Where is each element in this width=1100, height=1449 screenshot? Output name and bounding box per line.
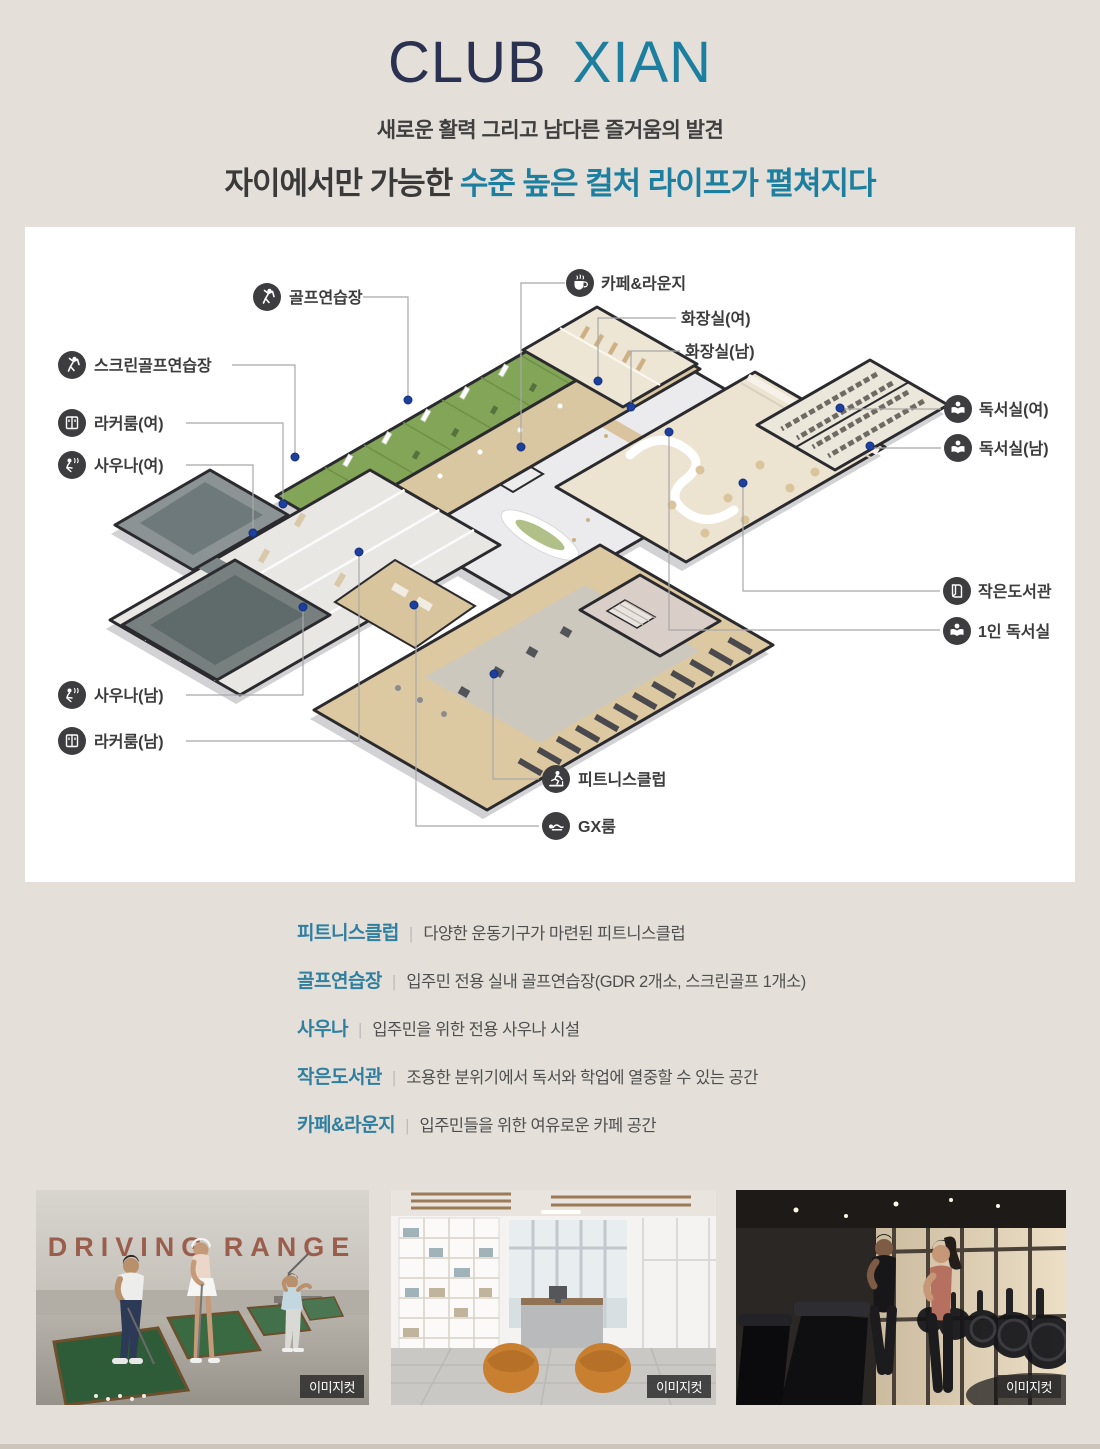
plan-label-small-library: 작은도서관 — [943, 577, 1052, 605]
page-subtitle: 새로운 활력 그리고 남다른 즐거움의 발견 — [0, 114, 1100, 144]
svg-text:사우나(여): 사우나(여) — [94, 457, 164, 475]
facility-separator: | — [392, 972, 396, 991]
title-xian: XIAN — [573, 30, 712, 95]
plan-label-golf-range: 골프연습장 — [253, 283, 363, 311]
marker-sauna-women — [249, 529, 257, 537]
marker-screen-golf — [291, 453, 299, 461]
locker-icon — [58, 409, 86, 437]
plan-label-single-reading: 1인 독서실 — [943, 617, 1050, 645]
floorplan-svg: 골프연습장 스크린골프연습장 라커룸(여) 사우나(여) 사우나(남) 라커룸(… — [25, 227, 1075, 882]
svg-text:골프연습장: 골프연습장 — [289, 289, 363, 307]
locker-icon — [58, 727, 86, 755]
plan-label-screen-golf: 스크린골프연습장 — [58, 351, 212, 379]
facility-row: 사우나|입주민을 위한 전용 사우나 시설 — [297, 1017, 806, 1044]
treadmill-consoles — [736, 1302, 870, 1405]
svg-text:GX룸: GX룸 — [578, 818, 616, 836]
facility-term: 카페&라운지 — [297, 1115, 395, 1136]
headline-accent: 수준 높은 컬처 라이프가 펼쳐지다 — [460, 166, 876, 201]
marker-gx-room — [410, 601, 418, 609]
facility-row: 작은도서관|조용한 분위기에서 독서와 학업에 열중할 수 있는 공간 — [297, 1065, 806, 1092]
svg-text:작은도서관: 작은도서관 — [978, 583, 1052, 601]
facility-desc: 입주민 전용 실내 골프연습장(GDR 2개소, 스크린골프 1개소) — [406, 973, 805, 991]
plan-label-reading-men: 독서실(남) — [944, 434, 1049, 462]
svg-text:라커룸(여): 라커룸(여) — [94, 415, 164, 433]
image-cut-badge: 이미지컷 — [300, 1375, 364, 1398]
plan-label-restroom-men: 화장실(남) — [685, 342, 755, 361]
facility-desc: 입주민을 위한 전용 사우나 시설 — [372, 1021, 579, 1039]
marker-locker-men — [355, 548, 363, 556]
svg-text:화장실(여): 화장실(여) — [681, 309, 751, 328]
marker-reading-men — [866, 442, 874, 450]
facility-row: 카페&라운지|입주민들을 위한 여유로운 카페 공간 — [297, 1113, 806, 1140]
svg-text:사우나(남): 사우나(남) — [94, 687, 164, 705]
svg-text:독서실(남): 독서실(남) — [979, 440, 1049, 458]
reader-icon — [944, 395, 972, 423]
facility-desc: 입주민들을 위한 여유로운 카페 공간 — [420, 1117, 657, 1135]
gx-icon — [542, 812, 570, 840]
marker-fitness — [490, 670, 498, 678]
plan-label-locker-women: 라커룸(여) — [58, 409, 164, 437]
title-club: CLUB — [388, 30, 547, 95]
marker-cafe-lounge — [517, 443, 525, 451]
plan-label-sauna-women: 사우나(여) — [58, 451, 164, 479]
svg-text:라커룸(남): 라커룸(남) — [94, 733, 164, 751]
sauna-icon — [58, 451, 86, 479]
plan-label-locker-men: 라커룸(남) — [58, 727, 164, 755]
page-headline: 자이에서만 가능한 수준 높은 컬처 라이프가 펼쳐지다 — [0, 158, 1100, 203]
svg-text:1인 독서실: 1인 독서실 — [978, 623, 1050, 641]
facility-desc: 조용한 분위기에서 독서와 학업에 열중할 수 있는 공간 — [406, 1069, 758, 1087]
facility-term: 골프연습장 — [297, 971, 382, 992]
facility-separator: | — [405, 1116, 409, 1135]
gym-photo-illustration — [736, 1190, 1066, 1405]
facility-separator: | — [392, 1068, 396, 1087]
photo-gym: 이미지컷 — [736, 1190, 1066, 1405]
facilities-list: 피트니스클럽|다양한 운동기구가 마련된 피트니스클럽 골프연습장|입주민 전용… — [297, 921, 806, 1161]
svg-text:피트니스클럽: 피트니스클럽 — [578, 771, 666, 789]
photo-golf-range: DRIVING RANGE — [36, 1190, 369, 1405]
golfer-icon — [253, 283, 281, 311]
svg-text:스크린골프연습장: 스크린골프연습장 — [94, 357, 212, 375]
plan-label-sauna-men: 사우나(남) — [58, 681, 164, 709]
marker-sauna-men — [299, 603, 307, 611]
svg-text:카페&라운지: 카페&라운지 — [601, 274, 686, 293]
facility-term: 피트니스클럽 — [297, 923, 399, 944]
facility-separator: | — [358, 1020, 362, 1039]
image-cut-badge: 이미지컷 — [997, 1375, 1061, 1398]
facility-term: 작은도서관 — [297, 1067, 382, 1088]
marker-single-reading — [665, 428, 673, 436]
golf-photo-illustration: DRIVING RANGE — [36, 1190, 369, 1405]
coffee-icon — [566, 269, 594, 297]
facility-term: 사우나 — [297, 1019, 348, 1040]
svg-text:독서실(여): 독서실(여) — [979, 401, 1049, 419]
plan-label-cafe-lounge: 카페&라운지 — [566, 269, 686, 297]
marker-reading-women — [836, 404, 844, 412]
facility-row: 골프연습장|입주민 전용 실내 골프연습장(GDR 2개소, 스크린골프 1개소… — [297, 969, 806, 996]
marker-small-library — [739, 479, 747, 487]
floorplan-panel: 골프연습장 스크린골프연습장 라커룸(여) 사우나(여) 사우나(남) 라커룸(… — [25, 227, 1075, 882]
marker-locker-women — [279, 500, 287, 508]
plan-label-gx-room: GX룸 — [542, 812, 616, 840]
marker-golf-range — [404, 396, 412, 404]
facility-row: 피트니스클럽|다양한 운동기구가 마련된 피트니스클럽 — [297, 921, 806, 948]
facility-desc: 다양한 운동기구가 마련된 피트니스클럽 — [423, 925, 685, 943]
page-title: CLUBXIAN — [0, 34, 1100, 92]
marker-restroom-men — [627, 403, 635, 411]
library-photo-illustration — [391, 1190, 716, 1405]
plan-label-restroom-women: 화장실(여) — [681, 309, 751, 328]
reader-icon — [944, 434, 972, 462]
headline-dark: 자이에서만 가능한 — [224, 166, 459, 201]
plan-label-reading-women: 독서실(여) — [944, 395, 1049, 423]
facility-separator: | — [409, 924, 413, 943]
bean-chair — [483, 1343, 539, 1393]
treadmill-icon — [542, 765, 570, 793]
marker-restroom-women — [594, 377, 602, 385]
sauna-icon — [58, 681, 86, 709]
club-xian-page: CLUBXIAN 새로운 활력 그리고 남다른 즐거움의 발견 자이에서만 가능… — [0, 0, 1100, 1449]
svg-text:화장실(남): 화장실(남) — [685, 342, 755, 361]
section-divider — [0, 1444, 1100, 1449]
golfer-icon — [58, 351, 86, 379]
bean-chair — [575, 1343, 631, 1393]
reader-icon — [943, 617, 971, 645]
image-cut-badge: 이미지컷 — [647, 1375, 711, 1398]
plan-label-fitness: 피트니스클럽 — [542, 765, 666, 793]
book-icon — [943, 577, 971, 605]
photo-library: 이미지컷 — [391, 1190, 716, 1405]
